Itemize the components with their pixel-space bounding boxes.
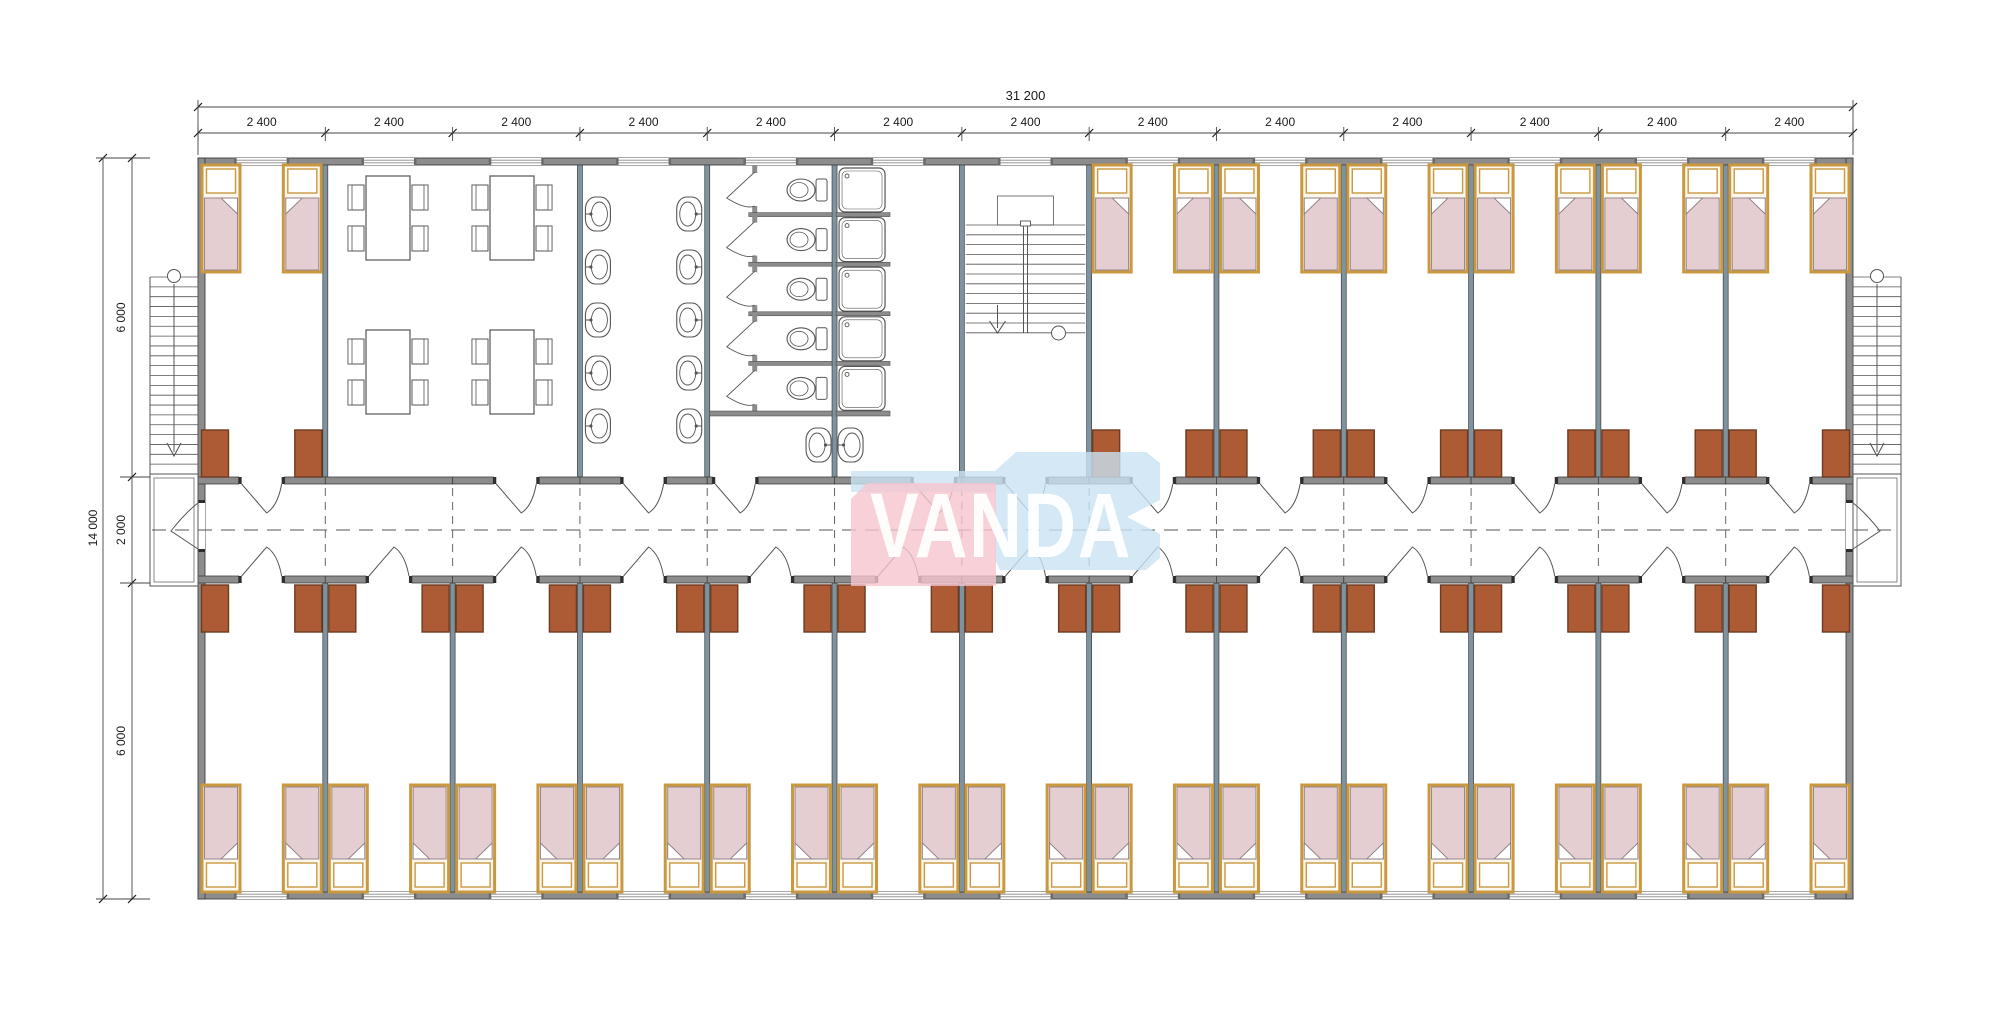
wardrobe (202, 585, 229, 632)
toilet-tank (816, 328, 827, 350)
pillow (415, 863, 444, 887)
stall-partition (749, 213, 832, 217)
wardrobe (1695, 430, 1722, 477)
pillow (1306, 863, 1335, 887)
pillow (588, 863, 617, 887)
pillow (1179, 169, 1208, 193)
pillow (970, 863, 999, 887)
pillow (1052, 863, 1081, 887)
pillow (1306, 169, 1335, 193)
pillow (1688, 863, 1717, 887)
window (1254, 158, 1306, 165)
wardrobe (1186, 430, 1213, 477)
window (363, 892, 415, 899)
window (1636, 158, 1688, 165)
stair-start-marker (1052, 326, 1066, 340)
pillow (207, 169, 236, 193)
wardrobe (202, 430, 229, 477)
dining-table (490, 176, 534, 260)
wardrobe (931, 585, 958, 632)
dining-table (366, 176, 410, 260)
window (363, 158, 415, 165)
window (490, 158, 542, 165)
wardrobe (456, 585, 483, 632)
window (618, 158, 670, 165)
stall-partition (749, 312, 832, 316)
pillow (1352, 863, 1381, 887)
pillow (1561, 169, 1590, 193)
dimension-label: 2 400 (1774, 115, 1804, 129)
pillow (843, 863, 872, 887)
wardrobe (1347, 430, 1374, 477)
window (872, 158, 924, 165)
pillow (1688, 169, 1717, 193)
dimension-label: 2 400 (1647, 115, 1677, 129)
wardrobe (1729, 585, 1756, 632)
pillow (1225, 863, 1254, 887)
wardrobe (1602, 430, 1629, 477)
dimension-label: 2 400 (501, 115, 531, 129)
window (1381, 892, 1433, 899)
wardrobe (1313, 430, 1340, 477)
wardrobe (549, 585, 576, 632)
dimension-label: 2 400 (883, 115, 913, 129)
wardrobe (838, 585, 865, 632)
window (1127, 158, 1179, 165)
stall-partition (749, 262, 832, 266)
window (745, 158, 797, 165)
window (490, 892, 542, 899)
wardrobe (965, 585, 992, 632)
wardrobe (1313, 585, 1340, 632)
floor-plan: 31 2002 4002 4002 4002 4002 4002 4002 40… (0, 0, 2000, 1032)
dimension-label: 2 400 (374, 115, 404, 129)
wardrobe (1568, 585, 1595, 632)
toilet-tank (816, 179, 827, 201)
pillow (1098, 169, 1127, 193)
logo-text: VANDA (870, 475, 1132, 577)
window (1636, 892, 1688, 899)
pillow (1179, 863, 1208, 887)
pillow (334, 863, 363, 887)
wardrobe (1695, 585, 1722, 632)
pillow (797, 863, 826, 887)
pillow (1816, 169, 1845, 193)
window (1000, 158, 1052, 165)
window (236, 892, 288, 899)
toilet-tank (816, 377, 827, 399)
dimension-label: 2 400 (629, 115, 659, 129)
pillow (1434, 169, 1463, 193)
dimension-label: 2 400 (1138, 115, 1168, 129)
pillow (1480, 169, 1509, 193)
wardrobe (1186, 585, 1213, 632)
wardrobe (711, 585, 738, 632)
pillow (716, 863, 745, 887)
wardrobe (1823, 585, 1850, 632)
dimension-label: 2 400 (1392, 115, 1422, 129)
wardrobe (1602, 585, 1629, 632)
wardrobe (1441, 430, 1468, 477)
window (1763, 892, 1815, 899)
pillow (1607, 863, 1636, 887)
pillow (1225, 169, 1254, 193)
wardrobe (677, 585, 704, 632)
window (1127, 892, 1179, 899)
dimension-label: 2 400 (756, 115, 786, 129)
pillow (1098, 863, 1127, 887)
window (872, 892, 924, 899)
wardrobe (583, 585, 610, 632)
wardrobe (1475, 585, 1502, 632)
window (236, 158, 288, 165)
stair-start-marker (168, 270, 181, 283)
dimension-label: 2 000 (114, 515, 128, 545)
pillow (288, 169, 317, 193)
wardrobe (1093, 585, 1120, 632)
toilet-tank (816, 278, 827, 300)
pillow (924, 863, 953, 887)
dining-table (366, 330, 410, 414)
floor-plan-canvas: 31 2002 4002 4002 4002 4002 4002 4002 40… (0, 0, 2000, 1032)
wardrobe (1441, 585, 1468, 632)
pillow (461, 863, 490, 887)
dining-table (490, 330, 534, 414)
window (1763, 158, 1815, 165)
window (618, 892, 670, 899)
dimension-label: 14 000 (86, 509, 100, 546)
dimension-label: 6 000 (114, 726, 128, 756)
wardrobe (1347, 585, 1374, 632)
pillow (1480, 863, 1509, 887)
pillow (207, 863, 236, 887)
wardrobe (1475, 430, 1502, 477)
pillow (288, 863, 317, 887)
wardrobe (1059, 585, 1086, 632)
pillow (1816, 863, 1845, 887)
pillow (670, 863, 699, 887)
dimension-label: 6 000 (114, 302, 128, 332)
pillow (1734, 863, 1763, 887)
wardrobe (1220, 585, 1247, 632)
window (1509, 892, 1561, 899)
wardrobe (1568, 430, 1595, 477)
stair-start-marker (1871, 270, 1884, 283)
dimension-label: 2 400 (1520, 115, 1550, 129)
pillow (542, 863, 571, 887)
pillow (1734, 169, 1763, 193)
dimension-label: 2 400 (247, 115, 277, 129)
wardrobe (329, 585, 356, 632)
toilet-tank (816, 229, 827, 251)
dimension-label: 2 400 (1010, 115, 1040, 129)
pillow (1434, 863, 1463, 887)
window (1509, 158, 1561, 165)
dimension-label: 31 200 (1006, 88, 1046, 103)
wardrobe (1220, 430, 1247, 477)
window (745, 892, 797, 899)
pillow (1352, 169, 1381, 193)
dimension-label: 2 400 (1265, 115, 1295, 129)
wardrobe (295, 430, 322, 477)
window (1381, 158, 1433, 165)
wardrobe (804, 585, 831, 632)
window (1254, 892, 1306, 899)
pillow (1561, 863, 1590, 887)
window (1000, 892, 1052, 899)
wardrobe (1729, 430, 1756, 477)
pillow (1607, 169, 1636, 193)
wardrobe (295, 585, 322, 632)
logo-watermark: VANDA (851, 452, 1160, 586)
stall-partition (749, 361, 832, 365)
wardrobe (422, 585, 449, 632)
wardrobe (1823, 430, 1850, 477)
